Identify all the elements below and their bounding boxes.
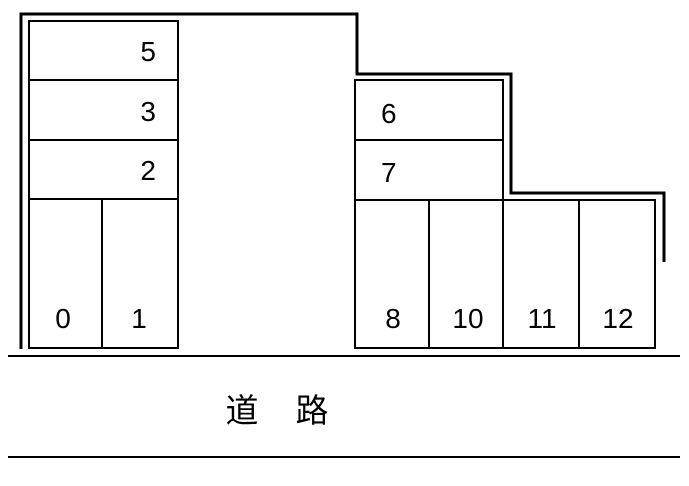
spot-11: 11 [503, 200, 579, 348]
spot-3: 3 [29, 80, 178, 140]
spot-label: 1 [131, 303, 147, 334]
spot-label: 8 [385, 303, 401, 334]
spot-1: 1 [102, 199, 178, 348]
spot-0: 0 [29, 199, 102, 348]
spot-8: 8 [355, 200, 429, 348]
spot-label: 5 [140, 36, 156, 67]
parking-diagram-canvas: 5 3 2 0 1 6 7 8 [0, 0, 689, 486]
spot-7: 7 [355, 140, 503, 200]
spot-label: 7 [381, 157, 397, 188]
parking-diagram: 5 3 2 0 1 6 7 8 [0, 0, 689, 486]
spot-label: 0 [55, 303, 71, 334]
spot-label: 11 [527, 303, 556, 334]
road-label: 道 路 [226, 392, 331, 429]
spot-label: 6 [381, 98, 397, 129]
spot-label: 3 [140, 96, 156, 127]
spot-2: 2 [29, 140, 178, 199]
spot-5: 5 [29, 21, 178, 80]
spot-label: 10 [452, 303, 483, 334]
spot-10: 10 [429, 200, 503, 348]
spot-label: 12 [602, 303, 633, 334]
boundary-wall-line [21, 14, 664, 349]
spot-12: 12 [579, 200, 655, 348]
spot-6-box [355, 80, 503, 140]
spot-6: 6 [355, 80, 503, 140]
spot-label: 2 [140, 155, 156, 186]
spot-7-box [355, 140, 503, 200]
